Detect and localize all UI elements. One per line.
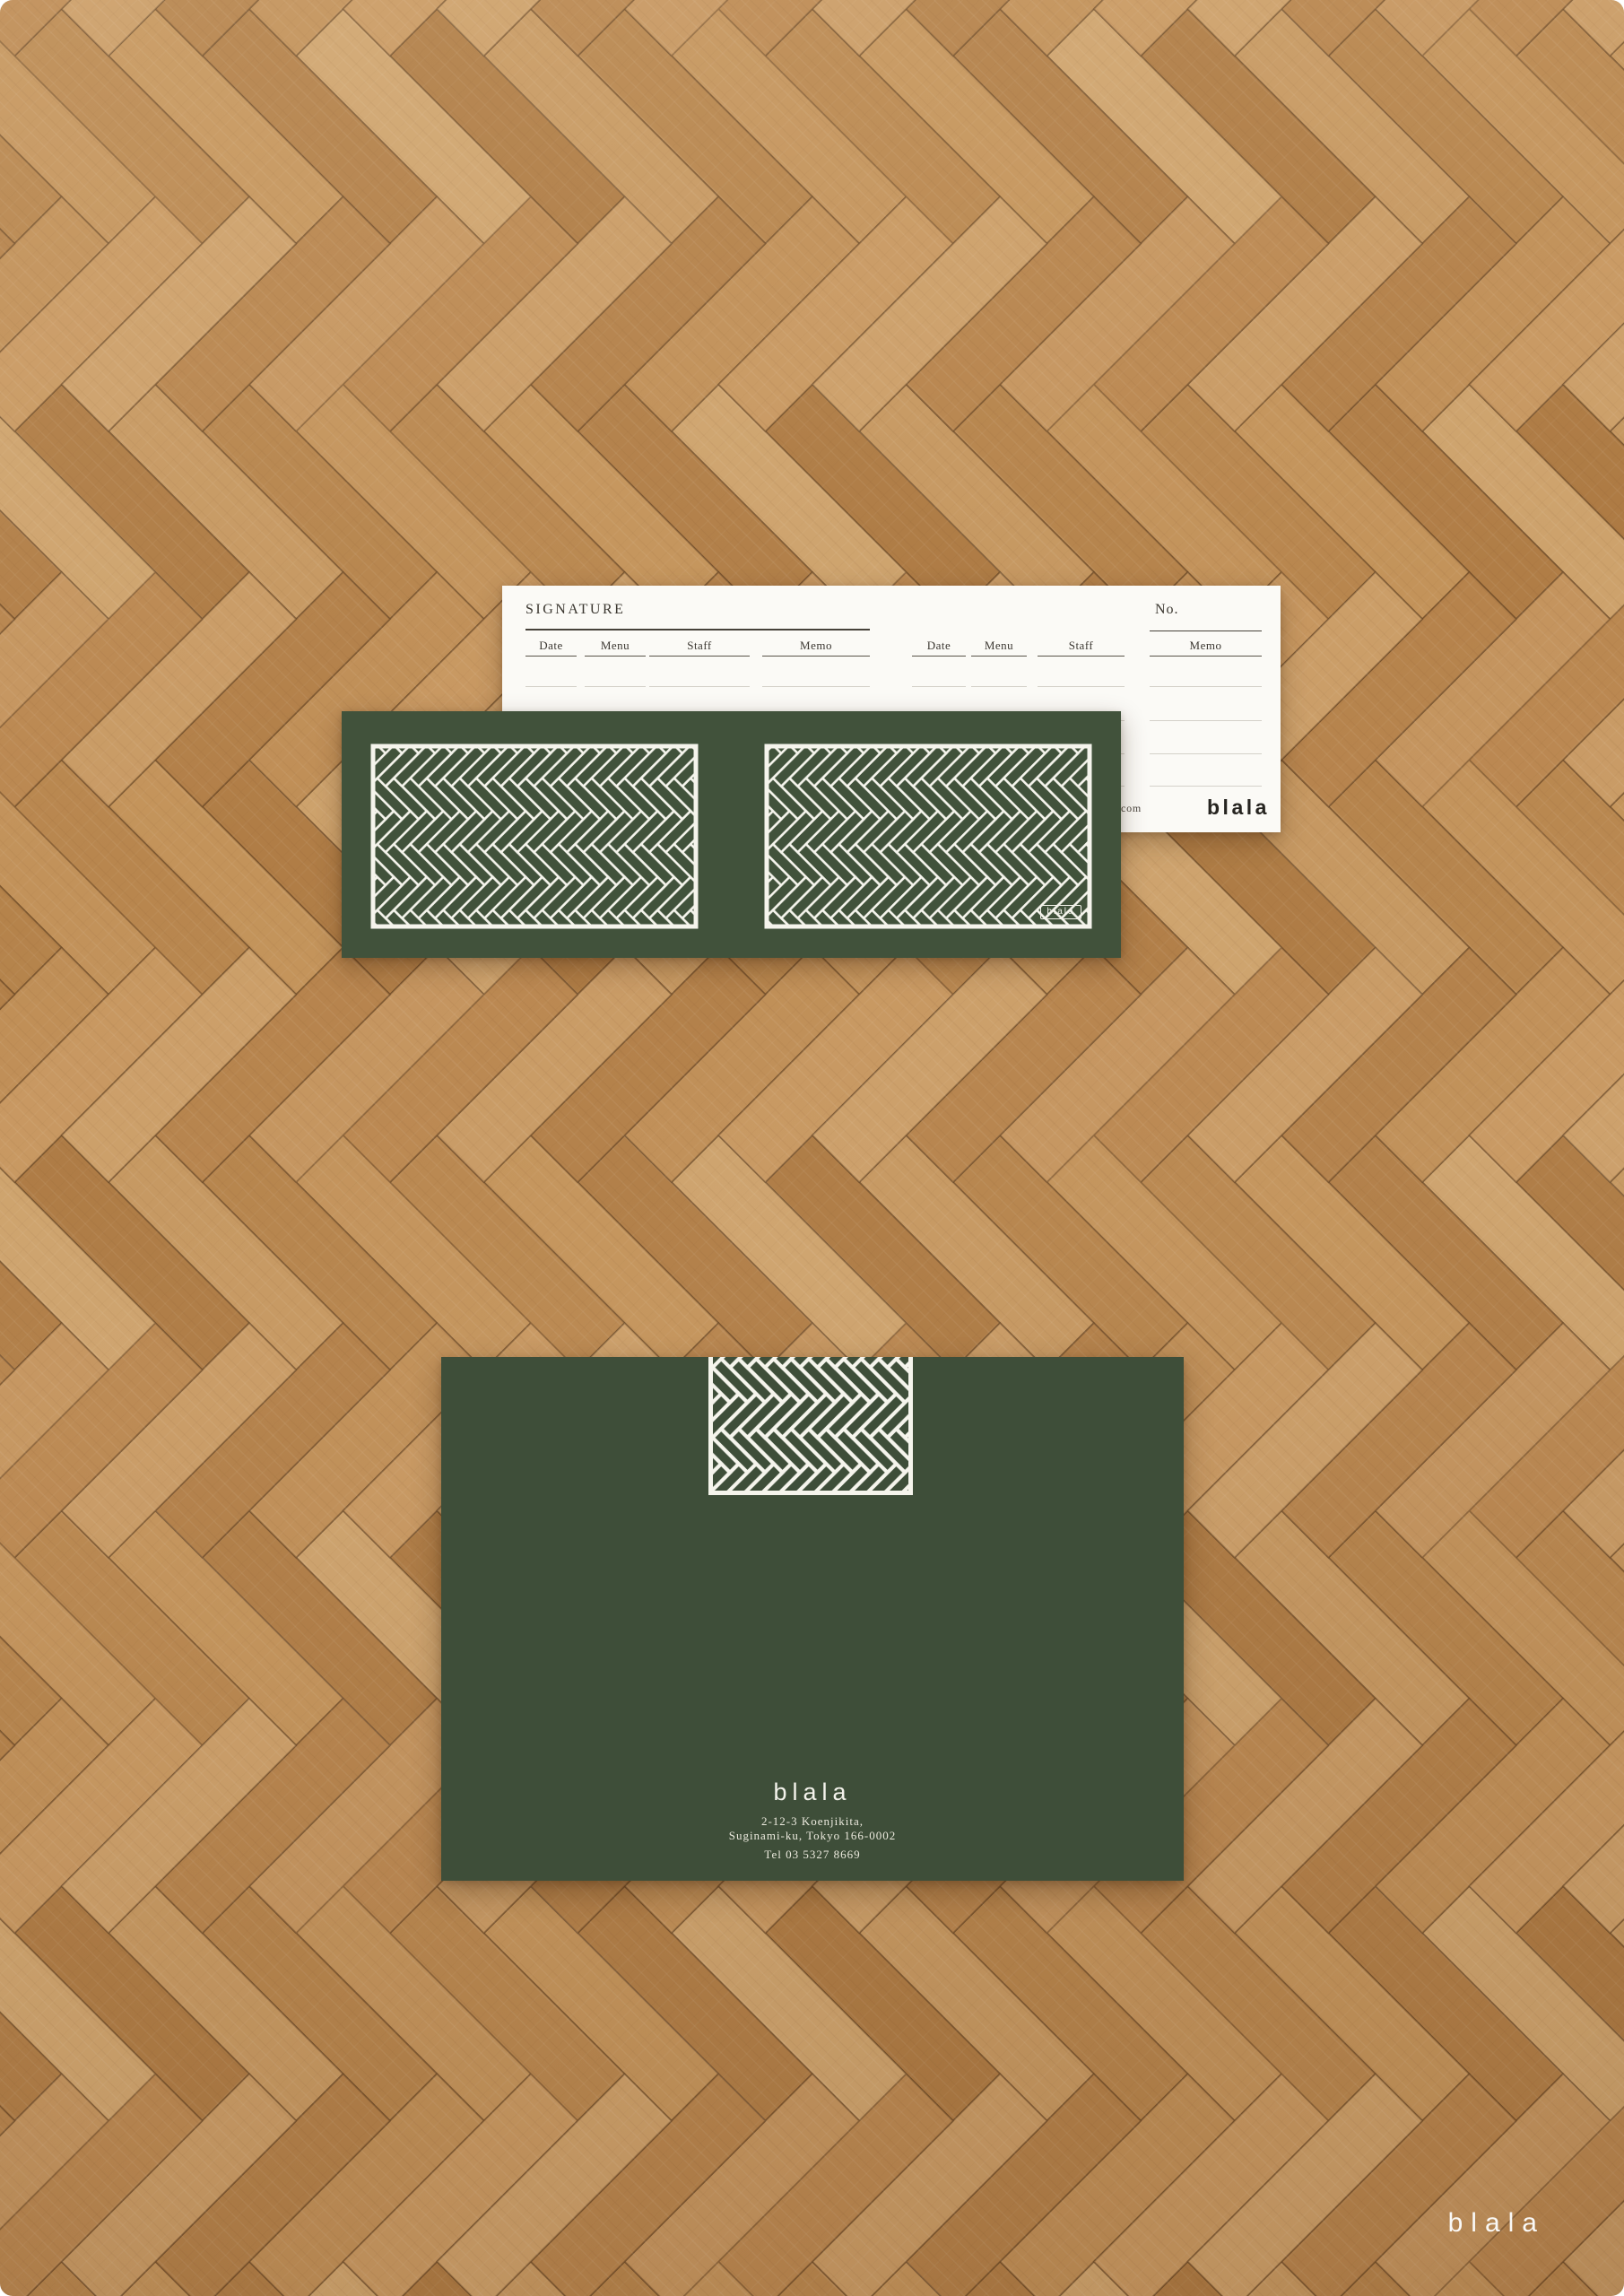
column-header-memo: Memo xyxy=(1150,636,1262,657)
table-row-line xyxy=(971,657,1027,687)
table-column-memo-right: Memo xyxy=(1150,636,1262,787)
table-row-line xyxy=(1038,657,1125,687)
column-header-staff: Staff xyxy=(1038,636,1125,657)
envelope-text-block: blala 2-12-3 Koenjikita, Suginami-ku, To… xyxy=(441,1779,1184,1862)
no-label: No. xyxy=(1155,602,1179,618)
signature-title-rule xyxy=(525,629,870,631)
address-line-2: Suginami-ku, Tokyo 166-0002 xyxy=(441,1829,1184,1843)
logo-badge: blala xyxy=(1040,905,1081,919)
address-lines: 2-12-3 Koenjikita, Suginami-ku, Tokyo 16… xyxy=(441,1814,1184,1843)
table-row-line xyxy=(1150,657,1262,687)
column-header-date: Date xyxy=(525,636,577,657)
signature-title: SIGNATURE xyxy=(525,602,625,618)
address-line-1: 2-12-3 Koenjikita, xyxy=(441,1814,1184,1829)
column-header-menu: Menu xyxy=(585,636,646,657)
column-header-staff: Staff xyxy=(649,636,750,657)
herringbone-panels xyxy=(342,711,1121,958)
table-row-line xyxy=(1150,754,1262,787)
table-row-line xyxy=(1150,721,1262,754)
phone-line: Tel 03 5327 8669 xyxy=(441,1848,1184,1862)
no-rule xyxy=(1150,631,1262,631)
voucher-card: blala xyxy=(342,711,1121,958)
partial-url-text: com xyxy=(1121,802,1142,815)
blala-logo: blala xyxy=(1207,796,1270,820)
herringbone-swatch xyxy=(441,1357,1184,1500)
wood-floor-background xyxy=(0,0,1624,2296)
stationery-mockup-photo: SIGNATURE No. Date Menu Staff Memo xyxy=(0,0,1624,2296)
table-row-line xyxy=(649,657,750,687)
table-row-line xyxy=(525,657,577,687)
table-row-line xyxy=(585,657,646,687)
table-row-line xyxy=(762,657,870,687)
blala-logo: blala xyxy=(441,1779,1184,1806)
table-row-line xyxy=(912,657,966,687)
column-header-menu: Menu xyxy=(971,636,1027,657)
column-header-memo: Memo xyxy=(762,636,870,657)
blala-watermark: blala xyxy=(1448,2208,1545,2239)
column-header-date: Date xyxy=(912,636,966,657)
envelope: blala 2-12-3 Koenjikita, Suginami-ku, To… xyxy=(441,1357,1184,1881)
table-row-line xyxy=(1150,687,1262,721)
